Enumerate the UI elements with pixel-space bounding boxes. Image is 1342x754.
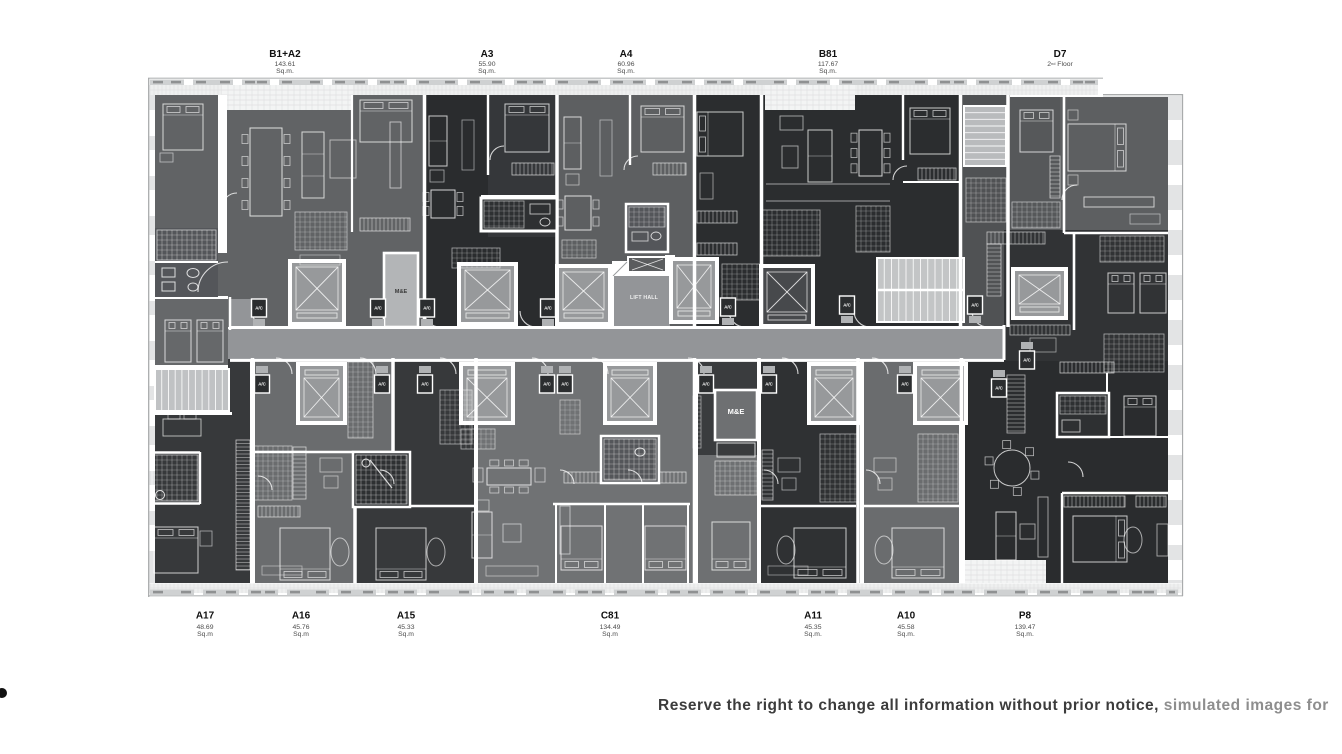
svg-text:Sq.m: Sq.m bbox=[602, 631, 618, 638]
svg-text:A/C: A/C bbox=[255, 306, 263, 311]
svg-text:A15: A15 bbox=[397, 611, 416, 622]
svg-text:A/C: A/C bbox=[543, 382, 551, 387]
svg-text:Sq.m.: Sq.m. bbox=[804, 631, 822, 638]
svg-text:134.49: 134.49 bbox=[600, 624, 621, 631]
svg-text:C81: C81 bbox=[601, 611, 620, 622]
svg-text:Sq.m.: Sq.m. bbox=[276, 68, 294, 75]
svg-text:D7: D7 bbox=[1054, 49, 1067, 60]
svg-text:Sq.m: Sq.m bbox=[293, 631, 309, 638]
svg-text:60.96: 60.96 bbox=[617, 61, 634, 68]
svg-text:A3: A3 bbox=[481, 49, 494, 60]
svg-text:117.67: 117.67 bbox=[818, 61, 839, 68]
svg-text:45.76: 45.76 bbox=[292, 624, 309, 631]
svg-text:A/C: A/C bbox=[901, 382, 909, 387]
svg-text:A/C: A/C bbox=[843, 303, 851, 308]
svg-text:A10: A10 bbox=[897, 611, 916, 622]
svg-text:A/C: A/C bbox=[374, 306, 382, 311]
svg-text:45.35: 45.35 bbox=[804, 624, 821, 631]
svg-text:B81: B81 bbox=[819, 49, 838, 60]
svg-text:M&E: M&E bbox=[728, 407, 745, 416]
svg-text:P8: P8 bbox=[1019, 611, 1032, 622]
svg-text:Sq.m.: Sq.m. bbox=[1016, 631, 1034, 638]
svg-text:M&E: M&E bbox=[395, 289, 408, 295]
svg-text:Sq.m.: Sq.m. bbox=[897, 631, 915, 638]
svg-text:A/C: A/C bbox=[765, 382, 773, 387]
svg-text:A/C: A/C bbox=[724, 305, 732, 310]
svg-text:A/C: A/C bbox=[258, 382, 266, 387]
svg-text:45.33: 45.33 bbox=[397, 624, 414, 631]
svg-text:A/C: A/C bbox=[971, 303, 979, 308]
svg-text:A17: A17 bbox=[196, 611, 215, 622]
svg-text:LIFT HALL: LIFT HALL bbox=[630, 295, 659, 301]
svg-text:A/C: A/C bbox=[561, 382, 569, 387]
svg-text:A/C: A/C bbox=[421, 382, 429, 387]
svg-text:Reserve the right to change al: Reserve the right to change all informat… bbox=[658, 697, 1329, 714]
svg-text:A11: A11 bbox=[804, 611, 822, 622]
svg-text:A/C: A/C bbox=[544, 306, 552, 311]
svg-text:Sq.m: Sq.m bbox=[197, 631, 213, 638]
svg-text:139.47: 139.47 bbox=[1015, 624, 1036, 631]
svg-text:A/C: A/C bbox=[423, 306, 431, 311]
svg-text:Sq.m.: Sq.m. bbox=[819, 68, 837, 75]
svg-text:Sq.m.: Sq.m. bbox=[478, 68, 496, 75]
svg-text:55.90: 55.90 bbox=[478, 61, 495, 68]
svg-text:48.69: 48.69 bbox=[196, 624, 213, 631]
svg-text:A/C: A/C bbox=[378, 382, 386, 387]
svg-text:A/C: A/C bbox=[1023, 358, 1031, 363]
svg-text:45.58: 45.58 bbox=[897, 624, 914, 631]
svg-text:Sq.m.: Sq.m. bbox=[617, 68, 635, 75]
svg-text:Sq.m: Sq.m bbox=[398, 631, 414, 638]
svg-text:A4: A4 bbox=[620, 49, 633, 60]
svg-text:B1+A2: B1+A2 bbox=[269, 49, 301, 60]
svg-text:A16: A16 bbox=[292, 611, 311, 622]
svg-text:A/C: A/C bbox=[702, 382, 710, 387]
svg-text:A/C: A/C bbox=[995, 386, 1003, 391]
svg-text:143.61: 143.61 bbox=[275, 61, 296, 68]
